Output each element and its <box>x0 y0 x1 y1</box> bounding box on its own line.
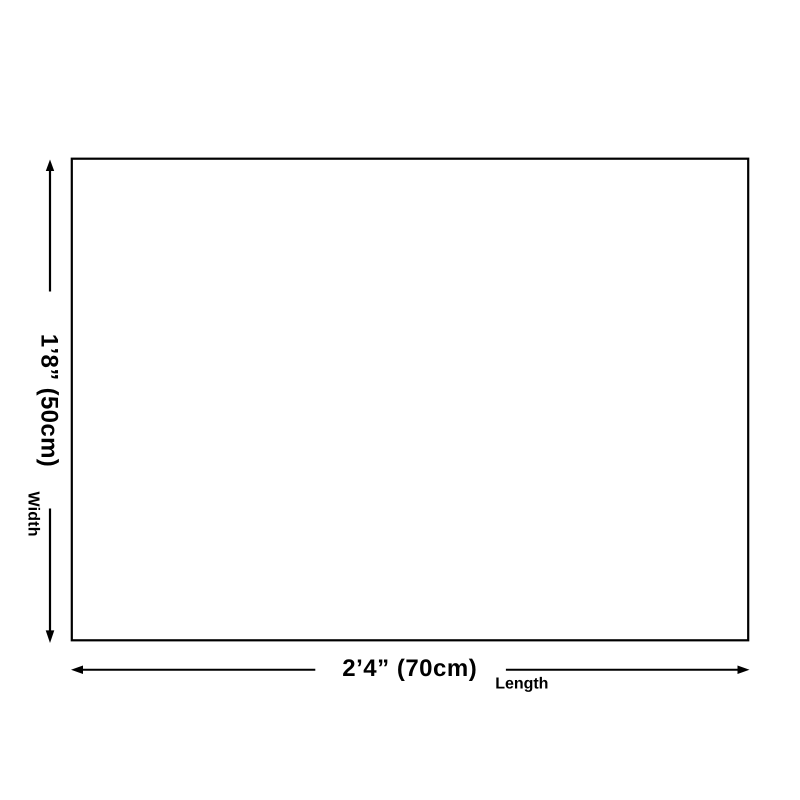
svg-text:Length: Length <box>495 676 548 693</box>
svg-text:Width: Width <box>24 492 41 537</box>
svg-text:2’4” (70cm): 2’4” (70cm) <box>342 655 477 682</box>
svg-text:1’8” (50cm): 1’8” (50cm) <box>35 334 62 467</box>
